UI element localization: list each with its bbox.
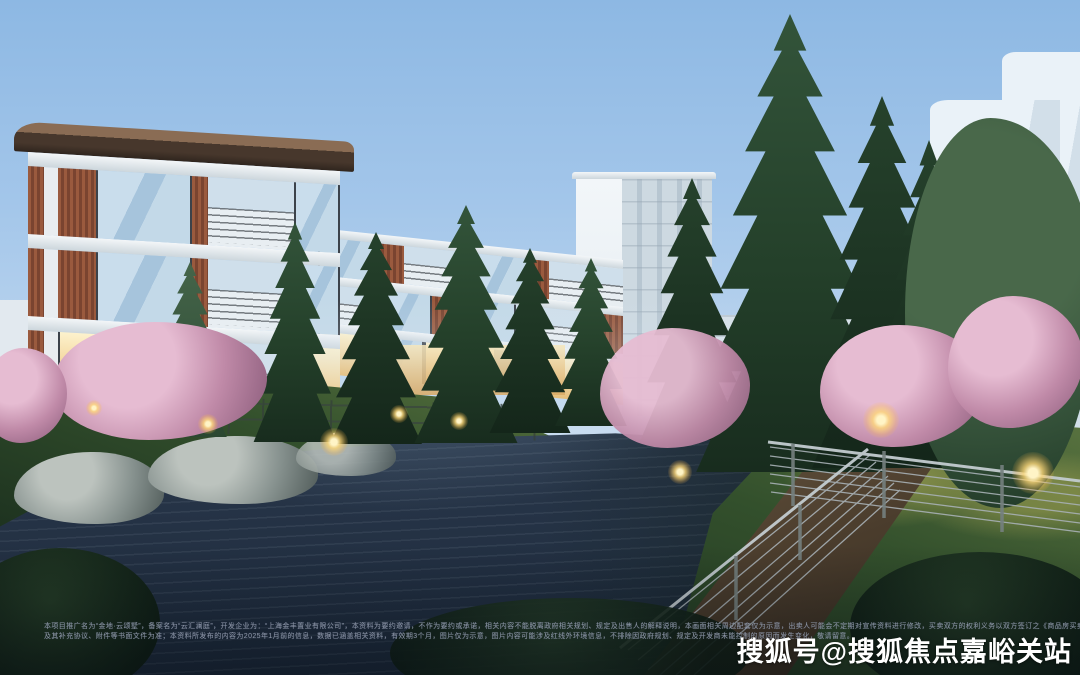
path-light <box>320 428 348 456</box>
path-light <box>450 412 468 430</box>
path-light <box>198 414 218 434</box>
path-light <box>86 400 102 416</box>
path-light <box>668 460 692 484</box>
path-light <box>1012 452 1054 494</box>
disclaimer-line-2: 及其补充协议、附件等书面文件为准；本资料所发布的内容为2025年1月前的信息，数… <box>44 632 854 642</box>
path-light <box>863 402 899 438</box>
architectural-render-scene: 本项目推广名为“金地·云颂墅”，备案名为“云汇澜庭”，开发企业为：“上海金丰置业… <box>0 0 1080 675</box>
path-light <box>390 405 408 423</box>
sohu-watermark: 搜狐号@搜狐焦点嘉峪关站 <box>737 630 1072 669</box>
